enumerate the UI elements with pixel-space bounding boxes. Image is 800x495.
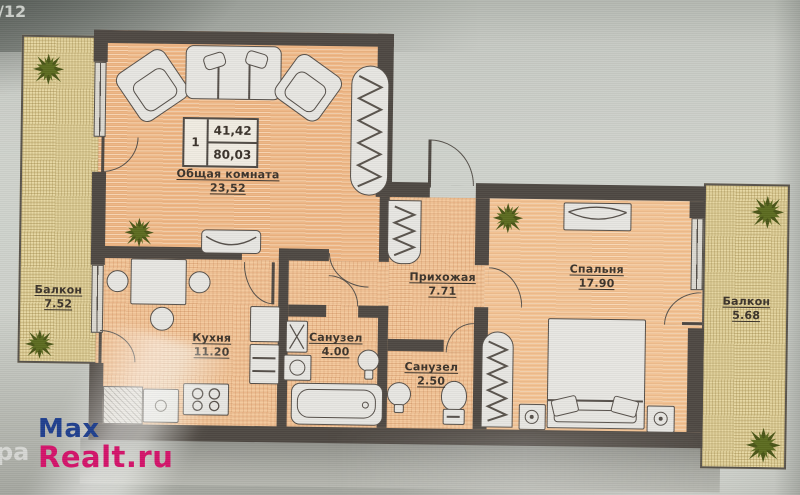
- label-balcony-right: Балкон 5.68: [706, 294, 786, 324]
- label-bath-2-name: Санузел: [395, 360, 467, 375]
- label-bedroom: Спальня 17.90: [554, 262, 638, 292]
- dresser-curve: [566, 205, 628, 228]
- door-kitchen-slab: [271, 262, 275, 304]
- loveseat-curve: [204, 232, 258, 251]
- label-living: Общая комната 23,52: [170, 167, 286, 197]
- wall-top-right: [476, 183, 706, 201]
- kitchen-chair-1: [106, 270, 128, 292]
- wall-living-hall: [289, 249, 329, 262]
- fridge: [250, 306, 280, 342]
- info-box-lower-value: 80,03: [208, 143, 256, 166]
- label-hall: Прихожая 7.71: [404, 270, 480, 300]
- label-living-area: 23,52: [170, 181, 286, 197]
- plant-balcony-right-bottom: [744, 425, 783, 466]
- label-bath-2: Санузел 2.50: [395, 360, 467, 390]
- toilet-tank-line: [447, 416, 460, 418]
- wardrobe-hall-zigzag: [390, 203, 419, 261]
- nightstand-right-dot: [659, 417, 663, 421]
- bathtub: [291, 383, 384, 426]
- nightstand-left-dot: [530, 415, 534, 419]
- label-living-name: Общая комната: [170, 167, 286, 183]
- toilet-tank: [443, 409, 465, 425]
- corner-text: /12: [0, 2, 26, 21]
- plant-balcony-right-top: [749, 193, 786, 231]
- label-bath-1-area: 4.00: [299, 345, 371, 360]
- label-bedroom-name: Спальня: [555, 262, 639, 277]
- label-hall-name: Прихожая: [405, 270, 481, 285]
- maxrealt-logo: Max Realt.ru: [38, 416, 173, 472]
- wardrobe-living-zigzag: [353, 68, 387, 192]
- window-bedroom-balcony: [690, 218, 703, 290]
- plant-bedroom: [491, 201, 524, 234]
- door-entrance: [430, 139, 475, 186]
- wall-left-1: [94, 30, 108, 62]
- bath1-pedestal-stem: [364, 370, 373, 380]
- bathtub-drain: [362, 402, 369, 409]
- info-box-number: 1: [184, 119, 209, 165]
- plant-living: [123, 216, 155, 248]
- label-balcony-left: Балкон 7.52: [22, 283, 94, 313]
- info-box-upper-value: 41,42: [208, 119, 256, 144]
- wardrobe-hall: [387, 200, 422, 264]
- wall-hall-bedroom-a: [475, 198, 490, 265]
- wall-bedroom-right-a: [689, 201, 705, 218]
- sofa-divider-2: [248, 61, 250, 99]
- loveseat: [201, 229, 261, 254]
- maxrealt-logo-line1: Max: [38, 416, 173, 442]
- cabinet-shelf-1: [252, 357, 275, 359]
- label-bedroom-area: 17.90: [554, 277, 638, 292]
- wall-bath1-top-a: [288, 305, 326, 318]
- nightstand-right: [647, 406, 675, 433]
- door-bedroom-balcony-slab: [682, 322, 702, 325]
- bed: [547, 318, 647, 429]
- label-bath-2-area: 2.50: [395, 374, 467, 389]
- watermark-fragment: ра: [0, 438, 29, 466]
- window-living-balcony: [94, 62, 107, 137]
- wardrobe-living: [350, 65, 390, 196]
- label-hall-area: 7.71: [404, 284, 480, 299]
- label-bath-1-name: Санузел: [300, 331, 372, 346]
- wardrobe-bedroom: [481, 331, 514, 427]
- label-bath-1: Санузел 4.00: [299, 331, 371, 361]
- door-living-balcony-slab: [101, 137, 105, 173]
- wall-bath2-top: [388, 339, 444, 352]
- bath1-sink-basin: [289, 360, 305, 376]
- label-balcony-right-name: Балкон: [706, 294, 786, 309]
- photo-of-floorplan: 1 41,42 80,03: [0, 0, 800, 495]
- label-balcony-left-name: Балкон: [22, 283, 94, 298]
- bath2-pedestal-stem: [394, 404, 404, 413]
- nightstand-left: [519, 404, 546, 430]
- photo-glare-bottom: [330, 430, 720, 495]
- plant-balcony-left-top: [31, 51, 65, 87]
- kitchen-cabinet: [249, 344, 280, 384]
- sofa: [185, 45, 282, 100]
- label-balcony-left-area: 7.52: [22, 297, 94, 312]
- wall-bedroom-right-b: [687, 328, 704, 432]
- info-box: 1 41,42 80,03: [182, 117, 259, 168]
- cabinet-shelf-2: [252, 370, 275, 372]
- kitchen-table: [130, 258, 187, 305]
- dresser: [563, 202, 631, 231]
- wardrobe-bedroom-zigzag: [484, 334, 511, 424]
- label-balcony-right-area: 5.68: [706, 309, 786, 324]
- maxrealt-logo-line2: Realt.ru: [38, 443, 173, 472]
